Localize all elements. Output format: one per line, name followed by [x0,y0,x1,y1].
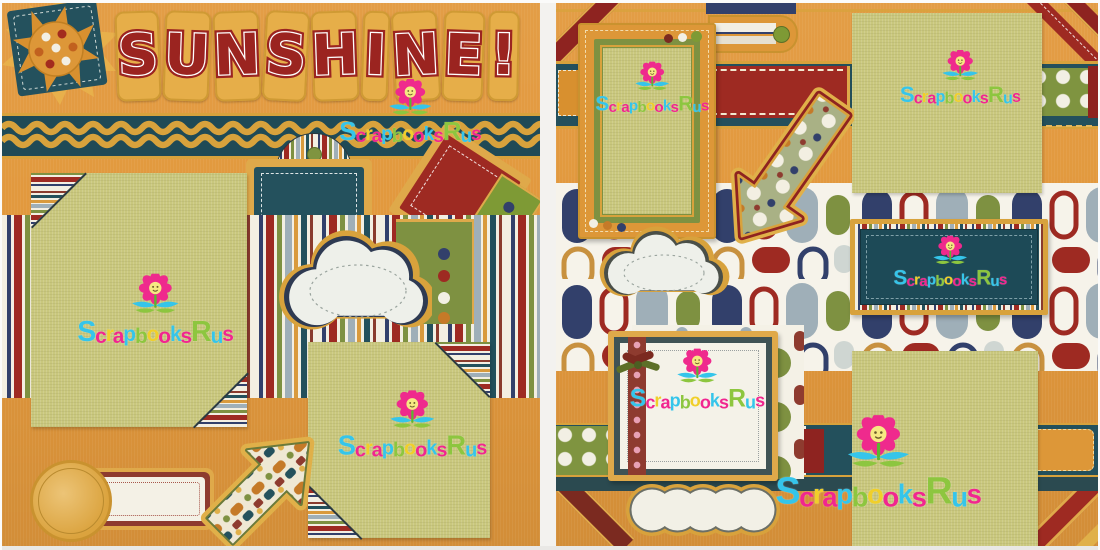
title-letter-tile: SSS [262,10,311,102]
ricrac-wave [2,124,540,132]
title-letter: ! [487,11,520,102]
title-letter: N [391,10,442,102]
photo-edge-bottom [0,546,1100,550]
title-letter: S [114,10,161,101]
page-gap [540,0,556,550]
title-letter: I [360,11,390,102]
left-page: SSSUUUNNNSSSHHHIIINNNEEE!!! [2,3,540,546]
label-tag [30,458,216,538]
title-letter-tile: SSS [114,10,161,101]
title-letter: H [310,10,359,102]
title-letter: E [441,10,485,101]
title-letter-tile: NNN [391,10,442,102]
white-journaling-card [608,325,808,485]
title-letter: S [262,10,311,102]
navy-sliver [706,3,796,14]
cloud-journaling-spot [272,221,432,339]
title-letter: U [162,10,211,102]
title-letter-tile: III [360,11,390,102]
photo-edge-top [0,0,1100,3]
frame-embellishment [578,23,716,239]
scalloped-label [624,473,782,546]
title-letter-tile: !!! [487,11,520,102]
arrow-up-right [194,421,336,546]
green-mat-bottom-right-2 [852,351,1038,546]
title-letter: N [212,10,261,102]
green-mat-top-left [31,173,247,427]
arrow-down-left [724,79,854,259]
cloud-embellishment [596,225,731,309]
scrapbook-photo: SSSUUUNNNSSSHHHIIINNNEEE!!! [0,0,1100,550]
ribbon-bow [614,351,662,381]
band-orange-ribbon [1032,429,1094,471]
title-letter-tile: EEE [441,10,485,101]
frame-center [603,48,691,214]
pen-tab-embellishment [708,15,798,53]
teal-journaling-card [850,219,1048,315]
top-edge-line [556,9,1098,12]
title-letter-tile: NNN [212,10,261,102]
tag-circle [30,460,112,542]
title-letter-tile: UUU [162,10,211,102]
green-mat-top-right [852,13,1042,193]
sun-embellishment [2,3,120,107]
title-letter-tile: HHH [310,10,359,102]
right-page [556,3,1098,546]
page-title: SSSUUUNNNSSSHHHIIINNNEEE!!! [114,11,540,111]
